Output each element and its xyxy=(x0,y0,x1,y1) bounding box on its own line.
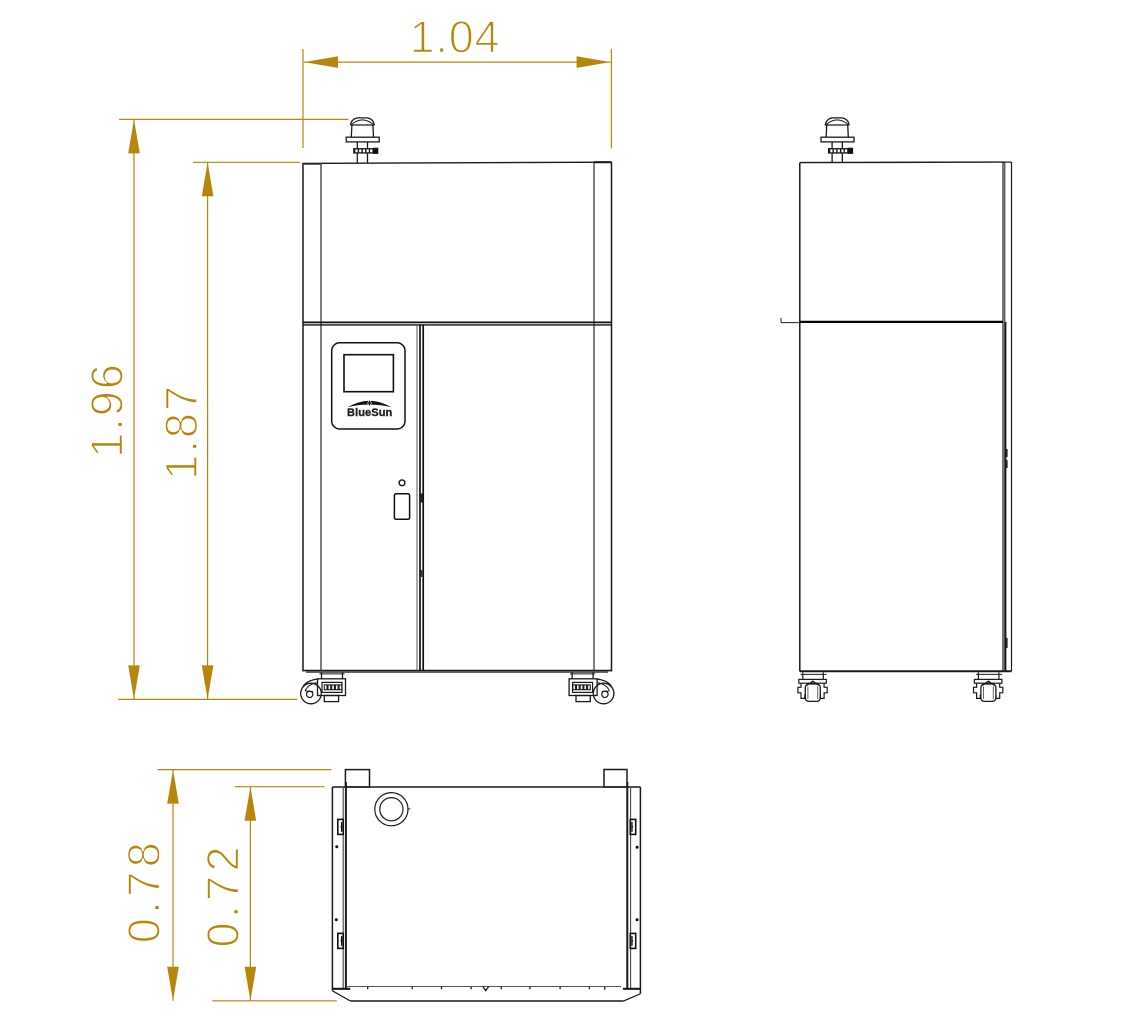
svg-text:0.78: 0.78 xyxy=(119,838,170,944)
svg-text:BlueSun: BlueSun xyxy=(347,407,392,419)
svg-text:1.87: 1.87 xyxy=(156,384,207,480)
svg-text:1.96: 1.96 xyxy=(82,362,133,458)
svg-text:1.04: 1.04 xyxy=(410,11,501,62)
svg-text:0.72: 0.72 xyxy=(197,842,248,948)
